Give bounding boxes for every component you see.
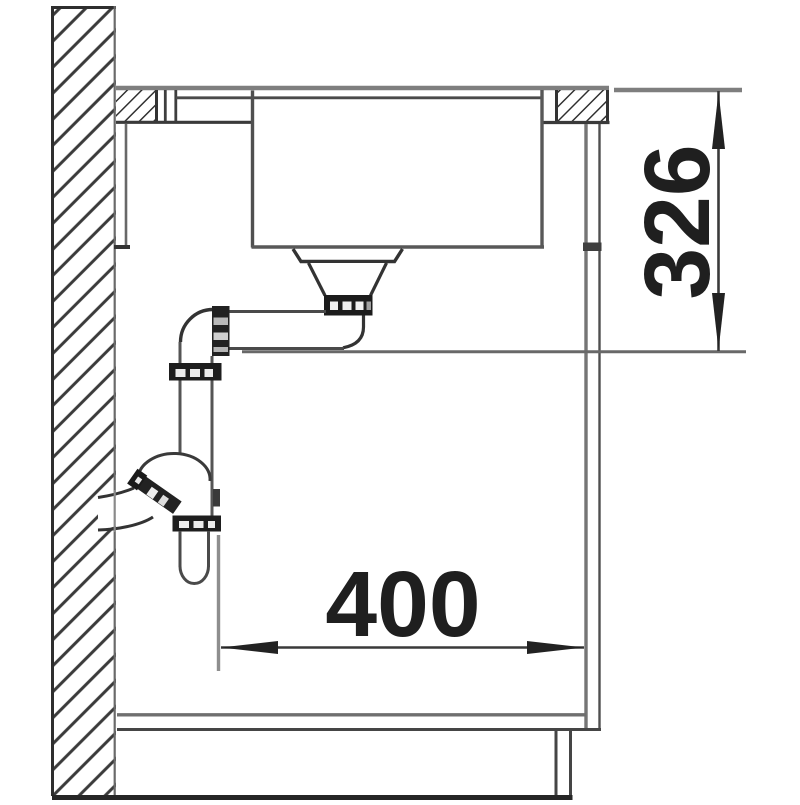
- svg-text:326: 326: [625, 144, 729, 299]
- svg-text:400: 400: [325, 552, 480, 656]
